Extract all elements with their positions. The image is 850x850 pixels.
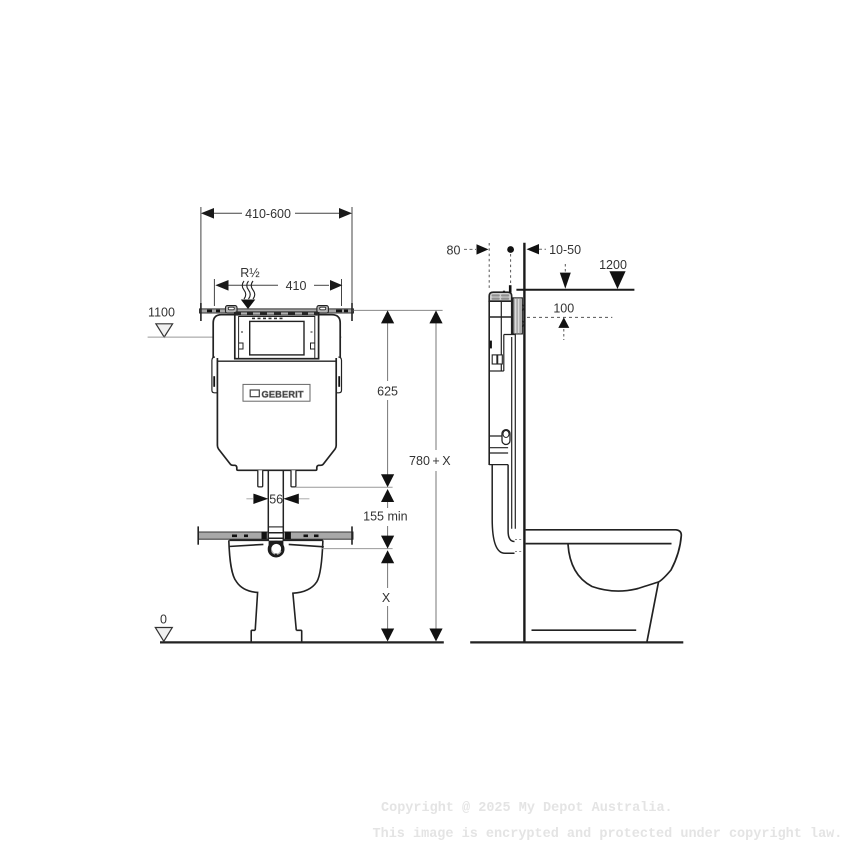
svg-text:410-600: 410-600 <box>245 207 291 221</box>
svg-text:10-50: 10-50 <box>549 243 581 257</box>
svg-text:80: 80 <box>447 243 461 257</box>
svg-text:GEBERIT: GEBERIT <box>262 389 304 399</box>
svg-text:This image is encrypted and pr: This image is encrypted and protected un… <box>373 827 843 842</box>
svg-text:625: 625 <box>377 385 398 399</box>
svg-text:410: 410 <box>286 279 307 293</box>
svg-text:Copyright @ 2025 My Depot Aust: Copyright @ 2025 My Depot Australia. <box>381 801 673 816</box>
svg-text:1100: 1100 <box>148 306 175 320</box>
svg-text:R½: R½ <box>240 266 260 280</box>
svg-text:X: X <box>382 591 391 605</box>
svg-text:100: 100 <box>553 302 574 316</box>
svg-text:1200: 1200 <box>599 258 627 272</box>
svg-text:56: 56 <box>269 492 283 506</box>
svg-text:0: 0 <box>160 613 167 627</box>
svg-text:780 + X: 780 + X <box>409 454 451 468</box>
svg-text:155 min: 155 min <box>363 510 408 524</box>
